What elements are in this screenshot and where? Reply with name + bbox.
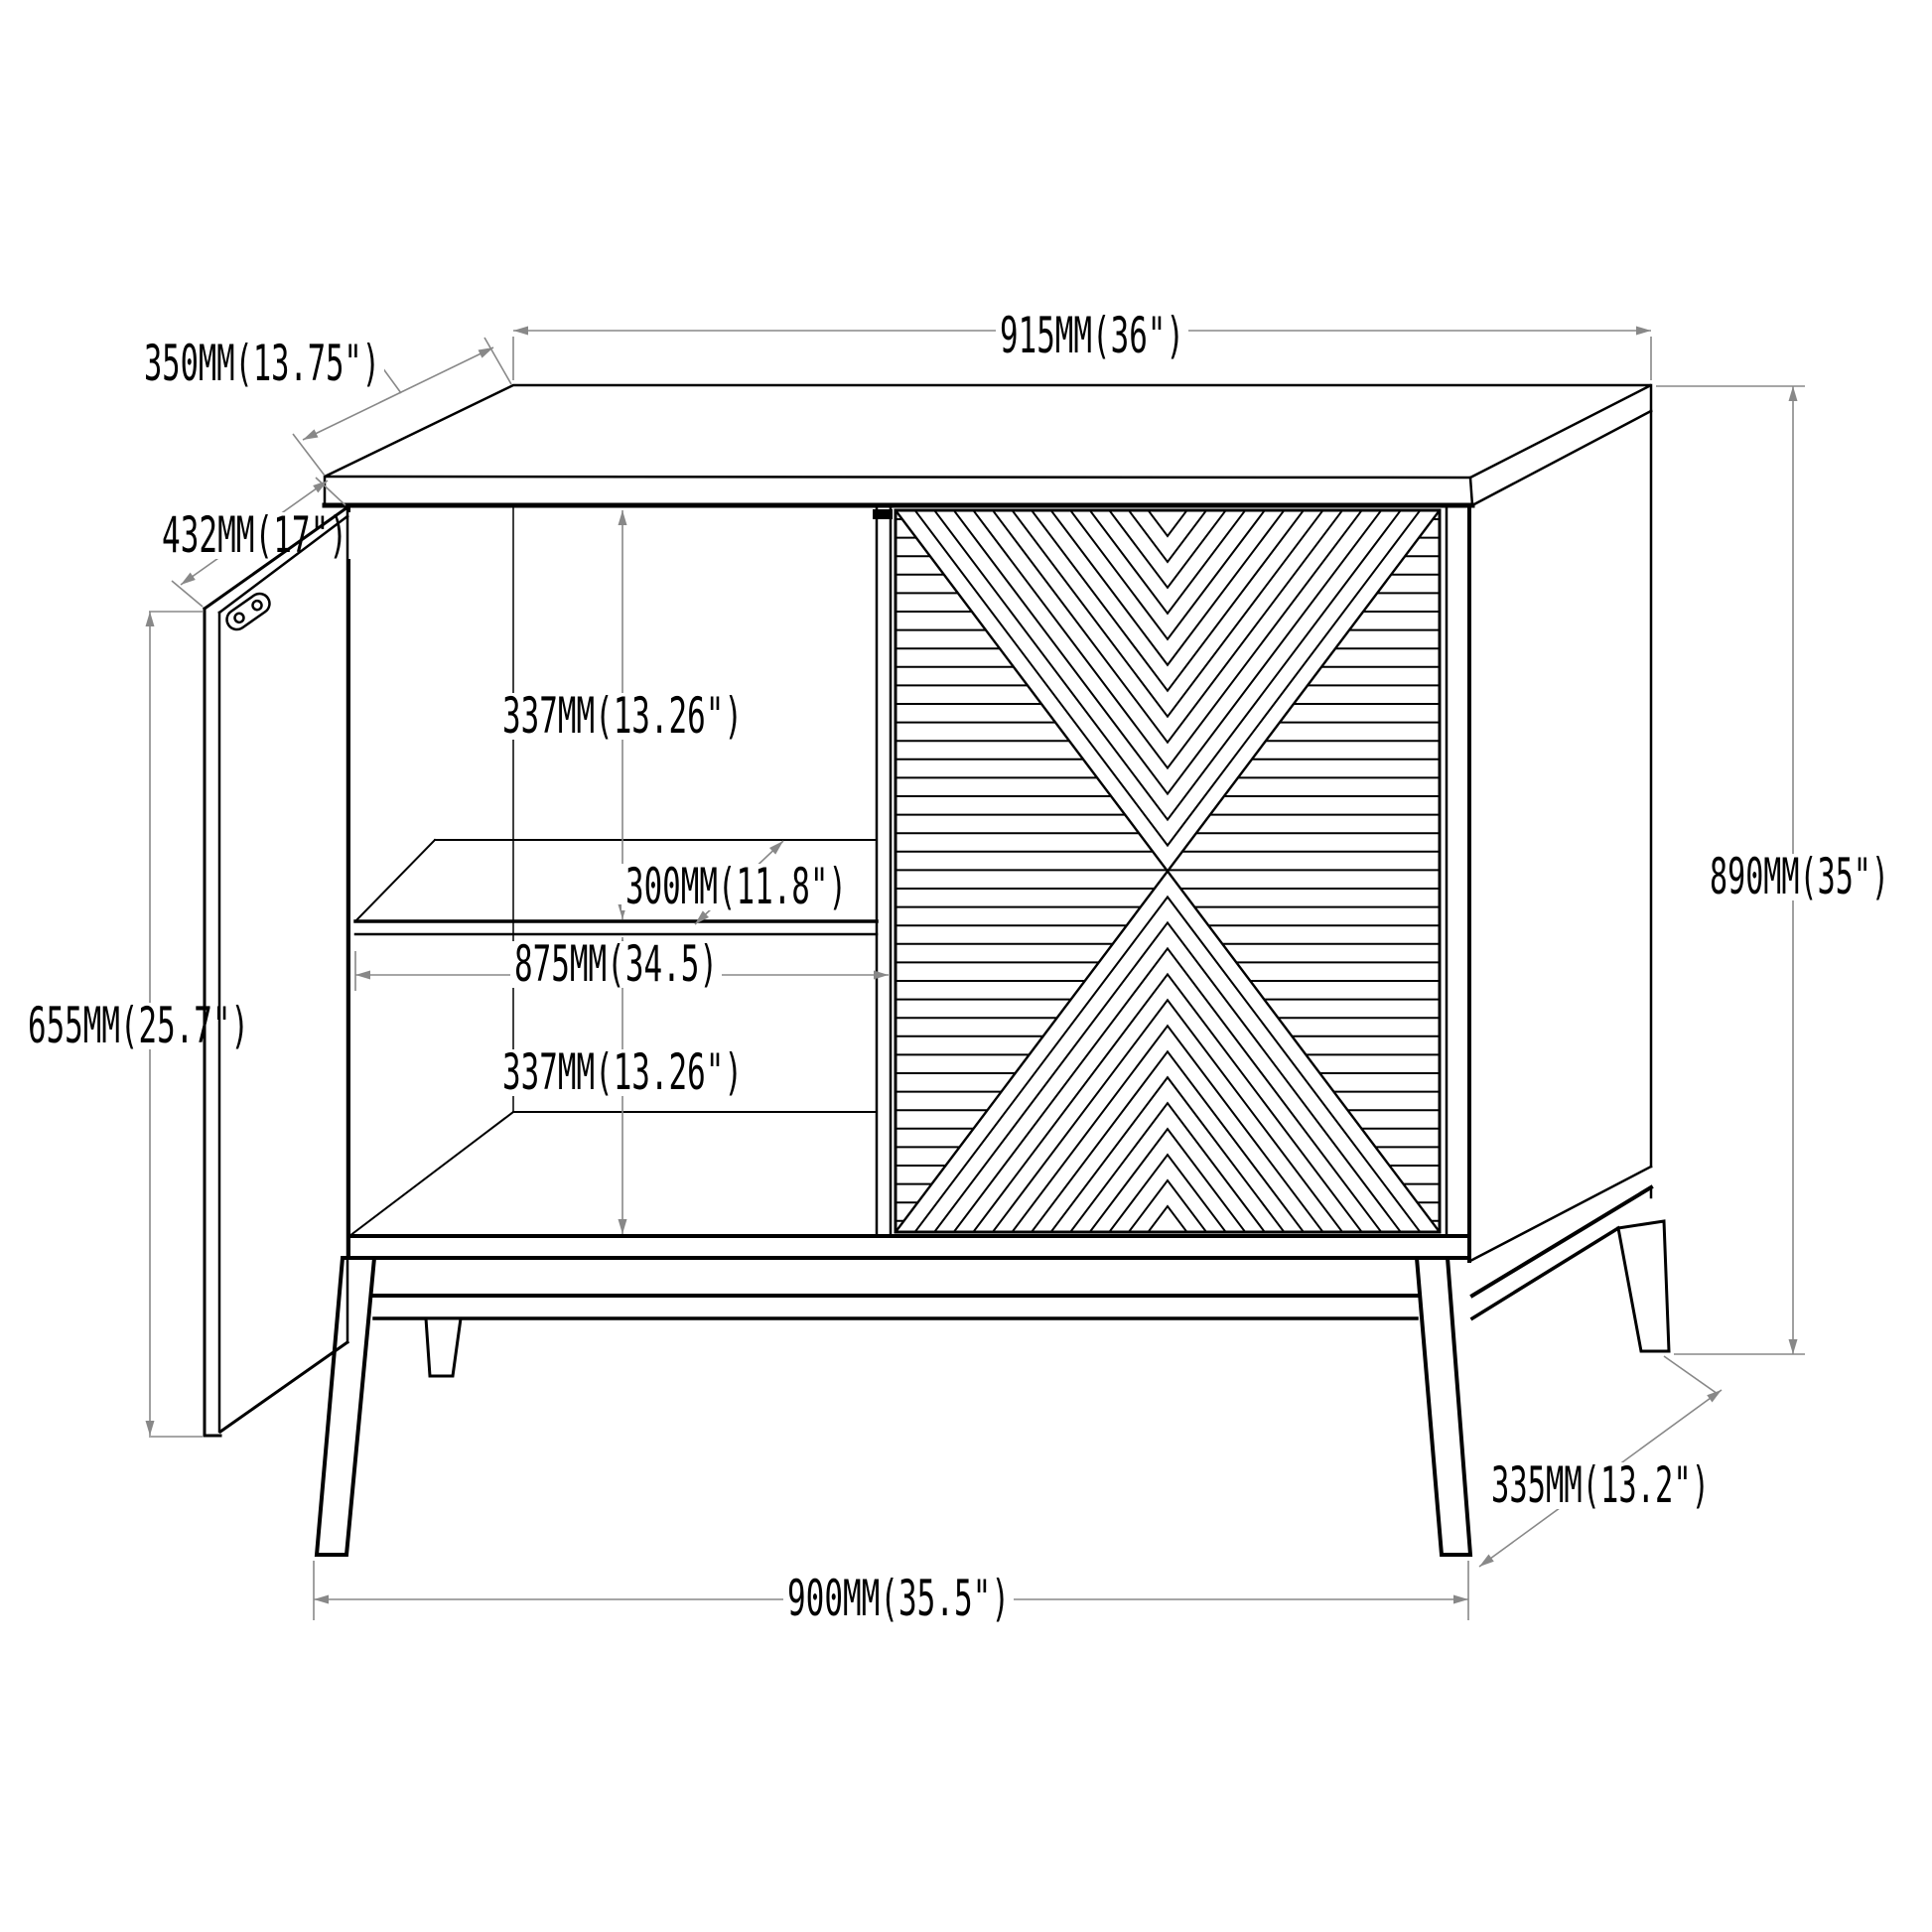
door-catch [873, 509, 893, 519]
dim-top-depth: 350MM(13.75") [140, 335, 384, 392]
rear-left-leg [426, 1318, 461, 1376]
chevron-line [1148, 510, 1186, 536]
front-right-leg [1417, 1258, 1470, 1555]
dim-top-width: 915MM(36") [996, 307, 1188, 364]
dimension-lines [149, 331, 1805, 1620]
dim-lower-compartment-label: 337MM(13.26") [502, 1043, 743, 1101]
legs [317, 1221, 1669, 1555]
top-surface [325, 385, 1651, 478]
dim-upper-compartment: 337MM(13.26") [498, 687, 747, 745]
right-door [896, 510, 1440, 1232]
dim-overall-height-label: 890MM(35") [1710, 848, 1889, 905]
right-side-panel [1470, 411, 1651, 1261]
dim-shelf-depth-label: 300MM(11.8") [625, 858, 847, 915]
cabinet-dimension-drawing: 350MM(13.75") 915MM(36") 432MM(17") 337M… [0, 0, 1932, 1932]
dim-lower-compartment: 337MM(13.26") [498, 1043, 747, 1101]
dim-shelf-depth: 300MM(11.8") [621, 858, 851, 915]
dim-interior-width-label: 875MM(34.5) [514, 935, 718, 993]
technical-drawing-page: 350MM(13.75") 915MM(36") 432MM(17") 337M… [0, 0, 1932, 1932]
dim-base-depth: 335MM(13.2") [1487, 1456, 1714, 1514]
chevron-line [1109, 510, 1225, 588]
top-board [325, 385, 1651, 505]
dim-top-depth-label: 350MM(13.75") [144, 335, 380, 392]
dim-door-open-width-label: 432MM(17") [162, 506, 347, 564]
center-divider [873, 507, 893, 1236]
dim-interior-width: 875MM(34.5) [510, 935, 722, 993]
dim-base-depth-label: 335MM(13.2") [1491, 1456, 1710, 1514]
chevron-line [954, 948, 1382, 1232]
chevron-line [1148, 1206, 1186, 1232]
open-door-face [205, 507, 347, 1436]
rear-right-leg [1618, 1221, 1669, 1351]
dim-door-height-label: 655MM(25.7") [28, 997, 249, 1054]
dim-base-width: 900MM(35.5") [783, 1570, 1014, 1627]
dim-top-width-label: 915MM(36") [1000, 307, 1184, 364]
dim-upper-compartment-label: 337MM(13.26") [502, 687, 743, 745]
dim-base-width-label: 900MM(35.5") [787, 1570, 1010, 1627]
dim-overall-height: 890MM(35") [1706, 848, 1893, 905]
chevron-line [954, 510, 1382, 794]
chevron-line [1109, 1155, 1225, 1232]
